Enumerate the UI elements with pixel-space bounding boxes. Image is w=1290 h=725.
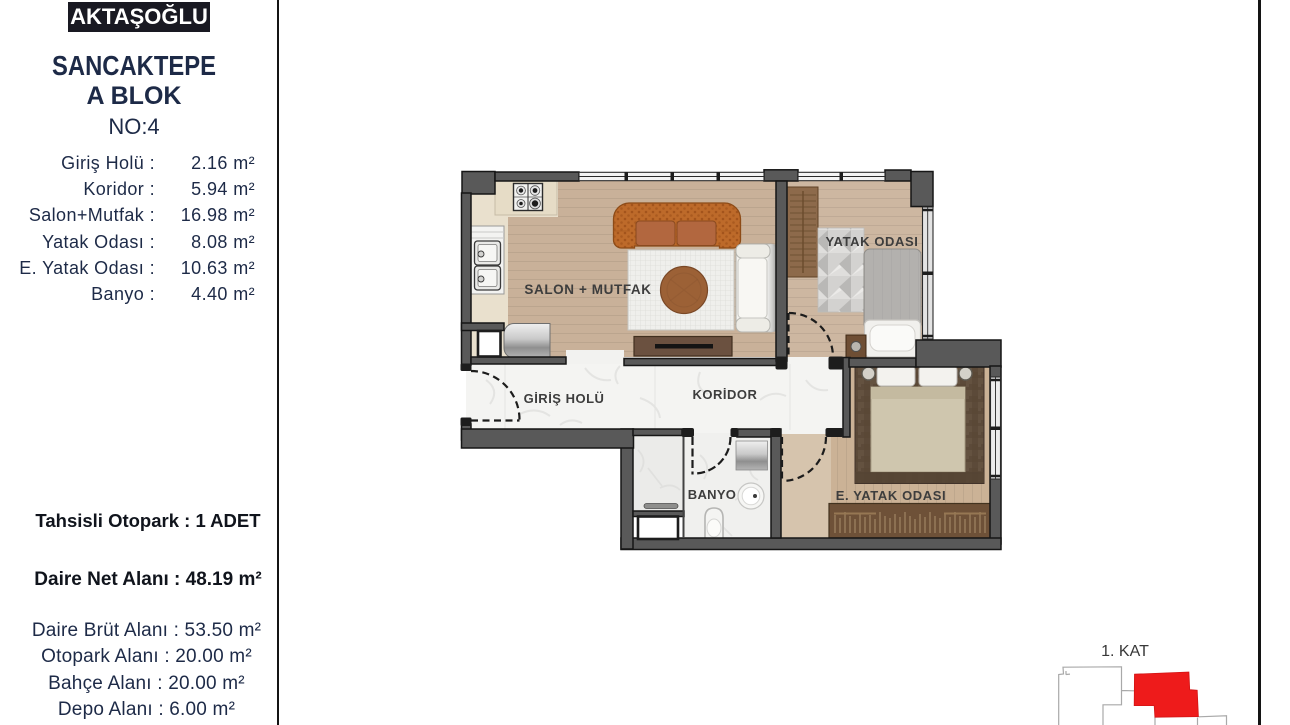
svg-text:1. KAT: 1. KAT (1101, 643, 1149, 660)
svg-text:YATAK ODASI: YATAK ODASI (825, 234, 918, 249)
svg-text:E. YATAK ODASI: E. YATAK ODASI (836, 488, 947, 503)
svg-text:GİRİŞ HOLÜ: GİRİŞ HOLÜ (524, 391, 605, 406)
svg-text:BANYO: BANYO (688, 487, 736, 502)
svg-text:KORİDOR: KORİDOR (693, 387, 758, 402)
svg-text:SALON + MUTFAK: SALON + MUTFAK (524, 282, 651, 297)
